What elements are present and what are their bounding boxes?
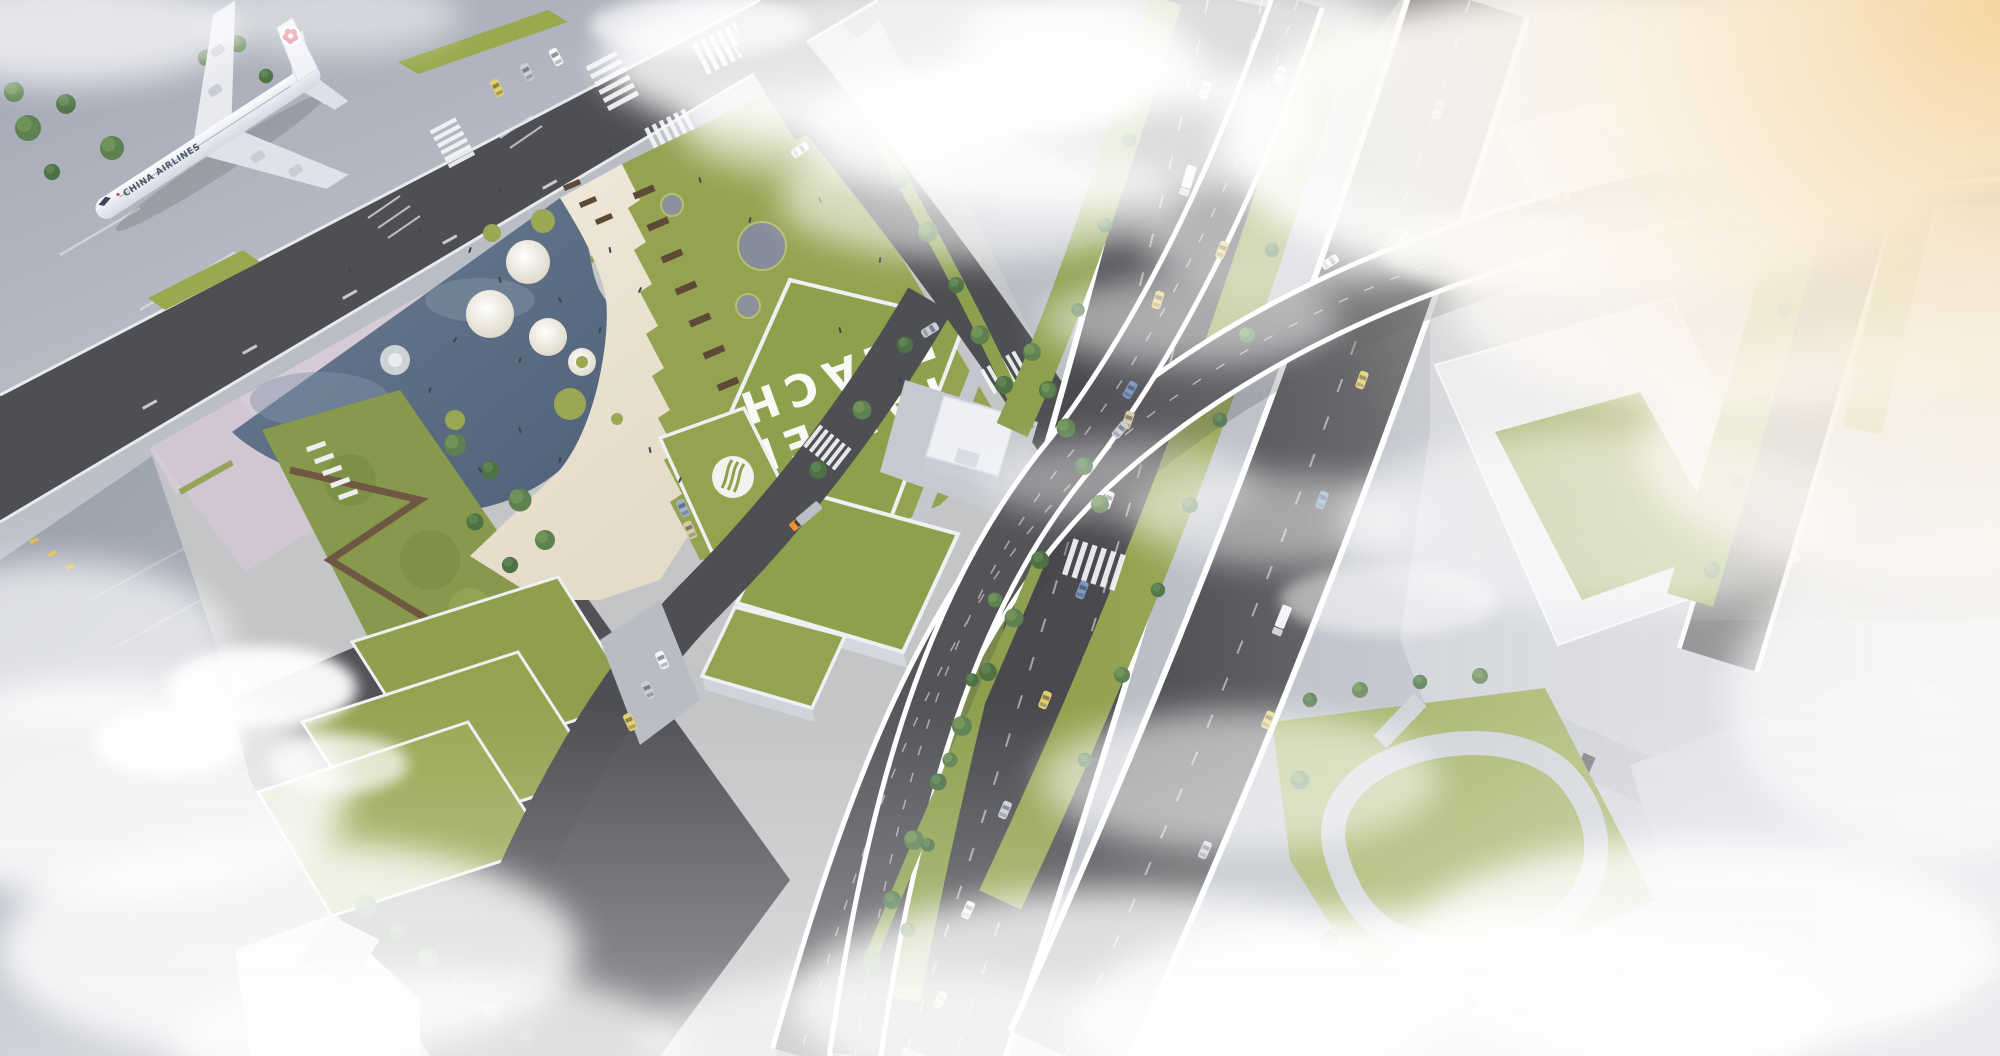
tree — [809, 461, 827, 479]
tree — [1041, 383, 1056, 398]
tree — [4, 82, 24, 102]
tree — [56, 94, 76, 114]
tree — [481, 461, 499, 479]
beach-dome — [466, 290, 514, 338]
beach-dome — [506, 240, 550, 284]
beach-dome — [529, 318, 567, 356]
tree — [979, 663, 997, 681]
tree — [1057, 419, 1076, 438]
tree — [444, 434, 466, 456]
tree — [502, 557, 518, 573]
tree — [1005, 609, 1024, 628]
lawn-crater — [661, 194, 683, 216]
tree — [259, 69, 273, 83]
sun-glow — [1240, 0, 2000, 620]
lawn-crater — [736, 294, 760, 318]
fog-wash-bottom — [0, 700, 2000, 1056]
tree — [948, 277, 964, 293]
tree — [466, 513, 483, 530]
tree — [44, 164, 60, 180]
tree — [988, 593, 1003, 608]
tree — [853, 401, 872, 420]
tree — [535, 530, 555, 550]
tree — [100, 136, 124, 160]
tree — [965, 673, 979, 687]
cloud — [900, 60, 1140, 132]
scene-rendering: TAIPEI BEACH — [0, 0, 2000, 1056]
tree — [971, 326, 990, 345]
aerial-rendering-stage: TAIPEI BEACH — [0, 0, 2000, 1056]
tree — [1023, 343, 1041, 361]
tree — [15, 115, 41, 141]
lawn-crater — [738, 222, 786, 270]
tree — [509, 489, 532, 512]
tree — [995, 376, 1013, 394]
tree — [897, 337, 913, 353]
tree — [1031, 551, 1049, 569]
